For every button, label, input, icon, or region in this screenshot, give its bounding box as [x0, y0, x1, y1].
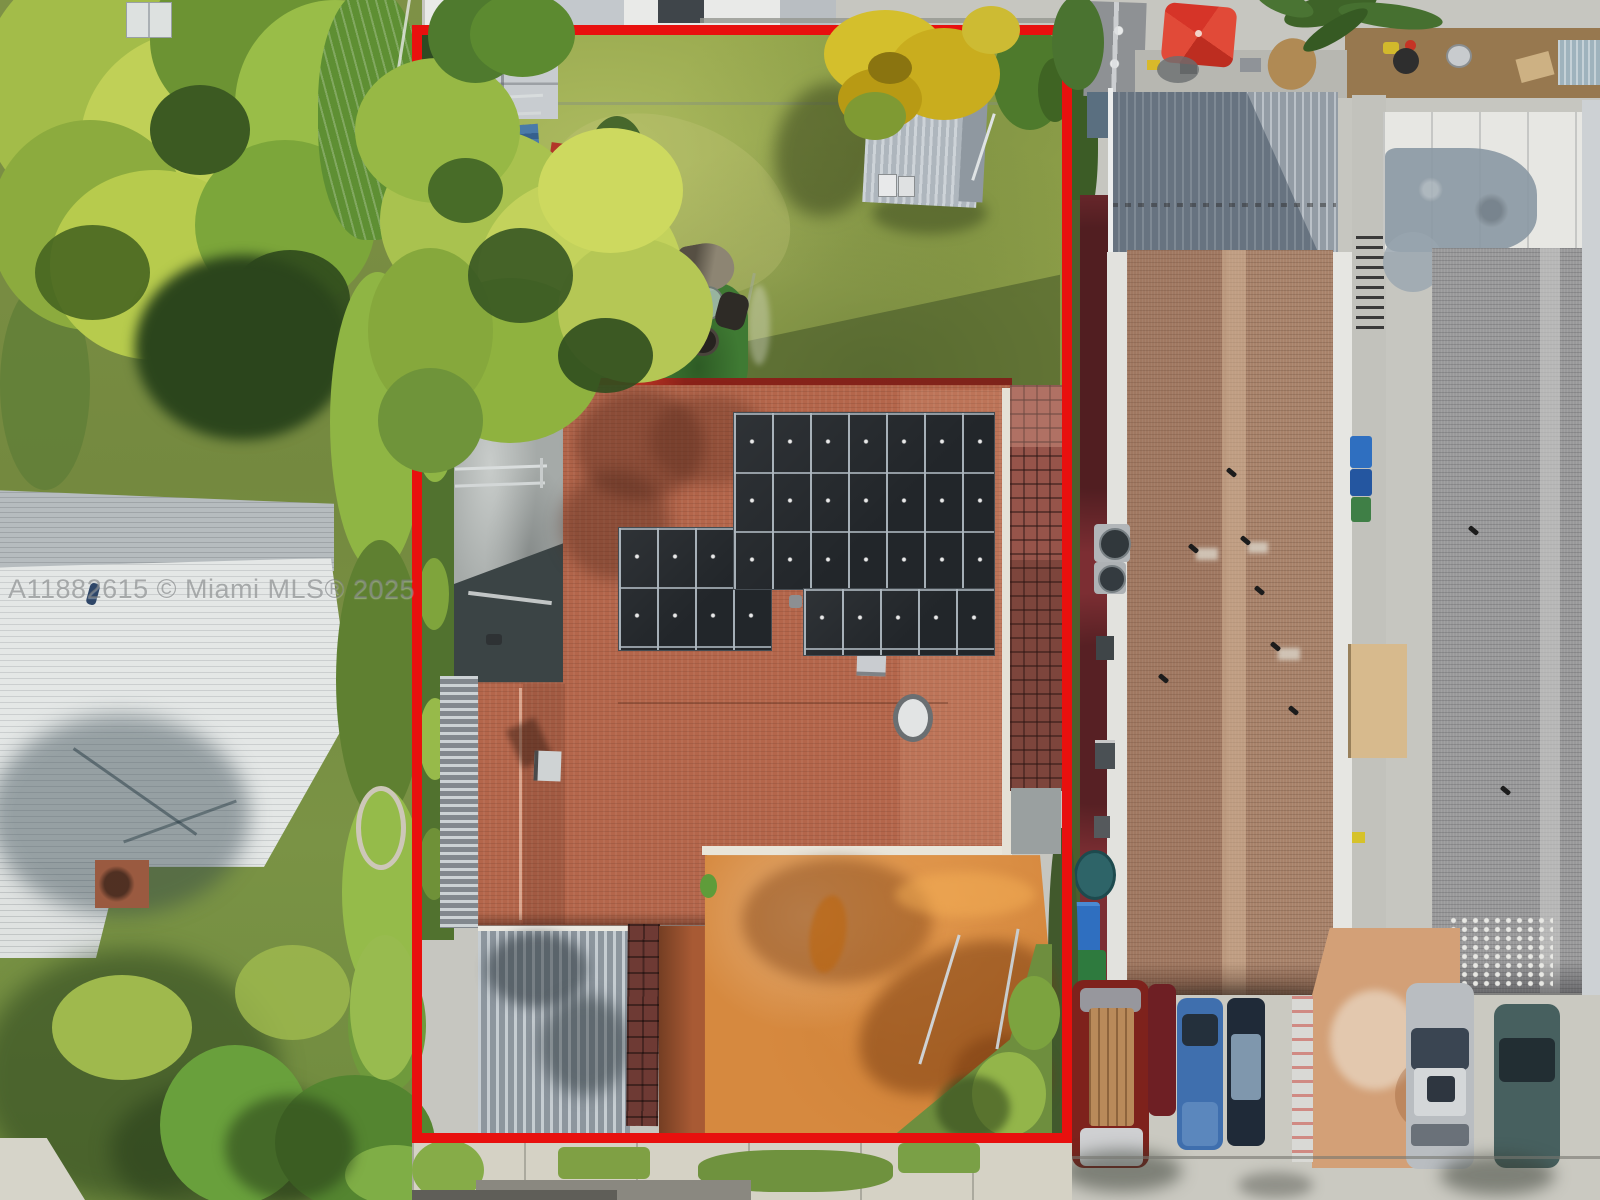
- teal-car: [1494, 1004, 1560, 1168]
- top-building-opening: [658, 0, 704, 23]
- roof-paint-patches: [1448, 916, 1553, 988]
- umbrella-pole: [1195, 30, 1202, 37]
- tree-shadow-gap: [150, 85, 250, 175]
- yard-item: [1352, 832, 1365, 843]
- ac-fan: [1099, 528, 1131, 560]
- roof-shade-side: [1127, 250, 1227, 995]
- yard-item: [1393, 48, 1419, 74]
- tree-canopy: [378, 368, 483, 473]
- suv-roof-rack: [1089, 1008, 1134, 1126]
- sunlit-grass: [52, 975, 192, 1080]
- yellow-flowering-tree: [868, 52, 912, 84]
- utility-meter: [1095, 740, 1115, 769]
- tree-shadow-gap: [468, 228, 573, 323]
- tree-shadow-gap: [428, 158, 503, 223]
- metal-sheet: [1558, 40, 1600, 85]
- maroon-car: [1148, 984, 1176, 1116]
- shadow: [1440, 1155, 1555, 1195]
- tree-shadow-gap: [35, 225, 150, 320]
- car-windshield: [1411, 1028, 1469, 1070]
- neighbor-patio: [95, 860, 149, 908]
- car-roof-panel: [1231, 1034, 1261, 1100]
- grass-strip: [558, 1147, 650, 1179]
- white-gate: [1292, 996, 1313, 1162]
- yellow-flowering-tree: [962, 6, 1020, 54]
- green-bin: [1351, 497, 1371, 522]
- ac-fan: [1098, 565, 1126, 593]
- plant-shadow: [225, 1095, 355, 1200]
- yard-item: [1240, 58, 1261, 72]
- utility-meter: [1096, 636, 1114, 660]
- curb-line: [1068, 1156, 1600, 1159]
- tree-shadow-gap: [558, 318, 653, 393]
- roof-stain: [1196, 548, 1218, 560]
- roof-ridge: [1540, 248, 1560, 993]
- alley: [1352, 95, 1386, 1000]
- hedge: [350, 935, 420, 1080]
- roof-seam: [1112, 203, 1336, 207]
- tree-canopy: [538, 128, 683, 253]
- grass-strip: [898, 1143, 980, 1173]
- car-windshield: [1499, 1038, 1555, 1082]
- yard-item: [1446, 44, 1472, 68]
- car-sunroof: [1427, 1076, 1455, 1102]
- curved-planter: [356, 786, 406, 870]
- blue-bin: [1350, 436, 1372, 468]
- blue-bin: [1350, 469, 1372, 496]
- iron-railing: [1356, 236, 1384, 334]
- aerial-property-photo: A11882615 © Miami MLS® 2025: [0, 0, 1600, 1200]
- car-rear-window: [1411, 1124, 1469, 1146]
- round-container: [1074, 850, 1116, 900]
- car-windshield: [1182, 1014, 1218, 1046]
- white-pole: [1108, 88, 1113, 260]
- mls-watermark: A11882615 © Miami MLS® 2025: [8, 574, 428, 605]
- far-right-wall: [1582, 100, 1600, 1000]
- beige-shed: [1348, 644, 1407, 758]
- car-trunk: [1182, 1102, 1218, 1146]
- sunlit-grass: [235, 945, 350, 1040]
- roof-ridge: [1222, 250, 1246, 995]
- utility-meter: [1094, 816, 1110, 838]
- road-edge: [412, 1190, 617, 1200]
- yellow-flowering-tree: [844, 92, 906, 140]
- shadow: [1238, 1172, 1313, 1198]
- patio-table: [1157, 56, 1199, 83]
- tree-shadow-gap: [135, 255, 350, 440]
- roof-stain: [1278, 648, 1300, 660]
- roof-stain: [1248, 542, 1268, 553]
- small-rooftop: [126, 2, 172, 38]
